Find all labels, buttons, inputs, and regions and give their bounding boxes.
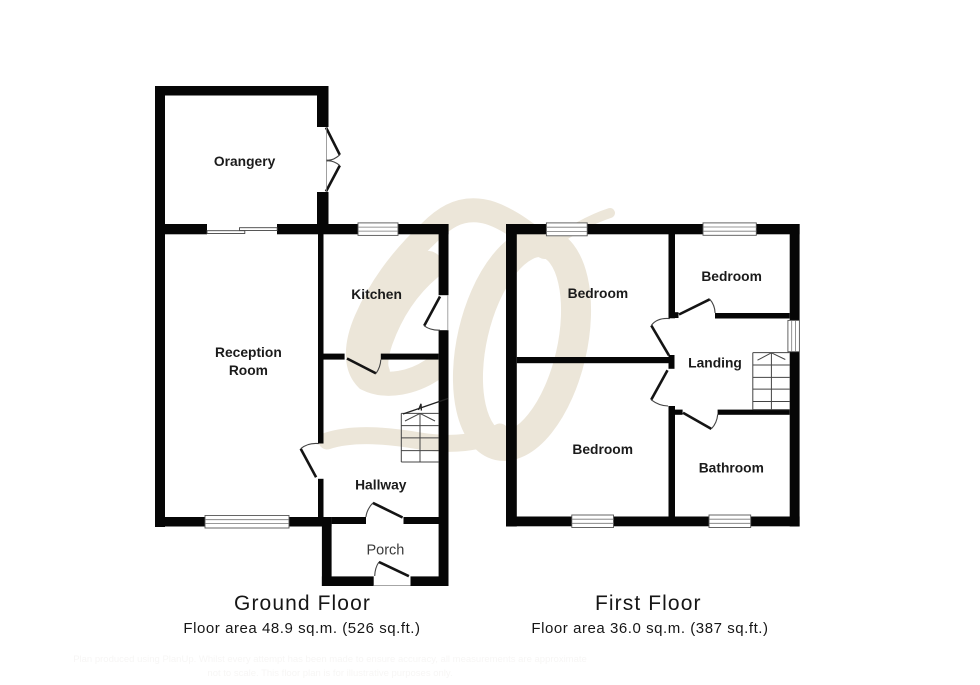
svg-text:Porch: Porch — [366, 542, 404, 558]
svg-text:Bathroom: Bathroom — [699, 461, 764, 476]
svg-text:Reception: Reception — [215, 345, 282, 360]
svg-text:Bedroom: Bedroom — [572, 442, 633, 457]
svg-text:Ground Floor: Ground Floor — [234, 592, 371, 615]
svg-text:Room: Room — [229, 363, 268, 378]
svg-text:Hallway: Hallway — [355, 477, 407, 492]
svg-text:Landing: Landing — [688, 356, 742, 371]
svg-text:Bedroom: Bedroom — [701, 269, 762, 284]
svg-text:Kitchen: Kitchen — [351, 287, 402, 302]
svg-text:not to scale. This floor plan: not to scale. This floor plan is for ill… — [207, 668, 452, 679]
svg-text:Plan produced using PlanUp. Wh: Plan produced using PlanUp. Whilst every… — [73, 654, 587, 665]
svg-text:Bedroom: Bedroom — [568, 286, 629, 301]
svg-text:Floor area 36.0 sq.m. (387 sq.: Floor area 36.0 sq.m. (387 sq.ft.) — [531, 620, 768, 637]
svg-text:First Floor: First Floor — [595, 592, 702, 615]
svg-text:Floor area 48.9 sq.m. (526 sq.: Floor area 48.9 sq.m. (526 sq.ft.) — [183, 620, 420, 637]
svg-text:Orangery: Orangery — [214, 154, 276, 169]
